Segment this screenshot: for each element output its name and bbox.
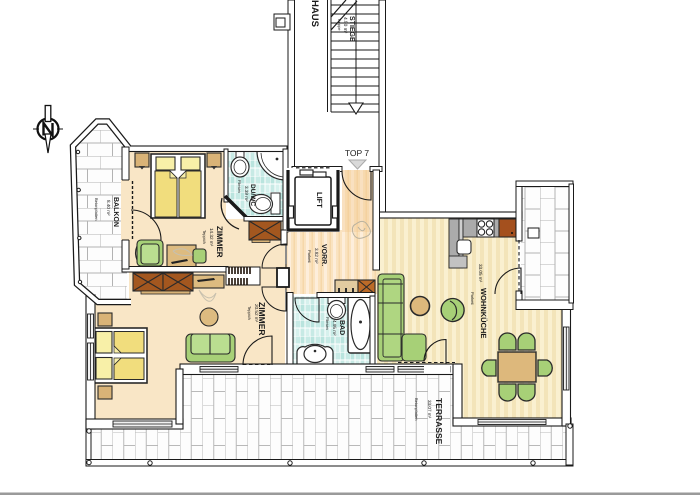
svg-text:Fliesen: Fliesen <box>325 317 330 330</box>
svg-text:Betonplatten: Betonplatten <box>414 398 419 420</box>
svg-text:4.95 m²: 4.95 m² <box>332 320 337 336</box>
svg-text:BALKON: BALKON <box>112 197 119 227</box>
svg-text:TOP 7: TOP 7 <box>345 148 370 158</box>
svg-text:BAD: BAD <box>338 320 345 335</box>
svg-text:20.52 m²: 20.52 m² <box>254 304 259 323</box>
svg-text:WOHNKÜCHE: WOHNKÜCHE <box>479 288 488 338</box>
svg-text:ZIMMER: ZIMMER <box>215 226 224 258</box>
svg-text:Parkett: Parkett <box>307 250 312 264</box>
svg-text:Teppich: Teppich <box>202 230 207 244</box>
svg-text:VORR.: VORR. <box>320 244 327 266</box>
svg-text:Treppe: Treppe <box>337 18 342 31</box>
svg-text:33.07 m²: 33.07 m² <box>427 400 432 419</box>
svg-text:Teppich: Teppich <box>247 306 252 320</box>
svg-text:14.32 m²: 14.32 m² <box>209 228 214 247</box>
svg-text:Fliesen: Fliesen <box>237 180 242 193</box>
svg-text:3.82 m²: 3.82 m² <box>314 248 319 264</box>
svg-text:3.39 m²: 3.39 m² <box>244 186 249 202</box>
svg-text:LIFT: LIFT <box>315 192 324 208</box>
svg-text:TERRASSE: TERRASSE <box>434 398 444 445</box>
svg-text:HAUS: HAUS <box>309 0 320 27</box>
svg-text:Betonplatten: Betonplatten <box>94 198 99 220</box>
svg-text:Parkett: Parkett <box>470 292 475 306</box>
svg-text:33.05 m²: 33.05 m² <box>478 264 483 283</box>
svg-text:DU/WC: DU/WC <box>249 184 256 206</box>
svg-text:8.40 m²: 8.40 m² <box>106 200 111 216</box>
svg-text:STIEGE: STIEGE <box>348 16 355 42</box>
